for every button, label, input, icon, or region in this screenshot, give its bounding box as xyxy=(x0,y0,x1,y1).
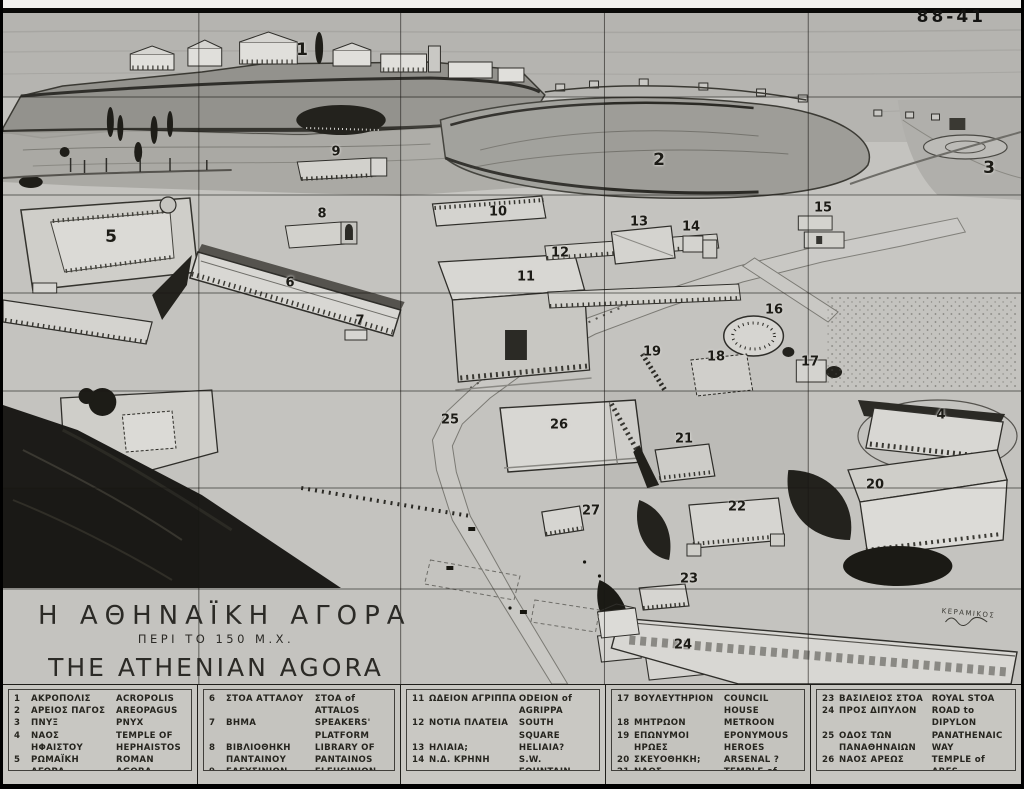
legend-entry-english: ROMAN AGORA xyxy=(116,754,187,771)
legend-entry-number: 21 xyxy=(617,766,632,771)
legend-tile-1: 1ΑΚΡΟΠΟΛΙΣACROPOLIS2ΑΡΕΙΟΣ ΠΑΓΟΣAREOPAGU… xyxy=(3,685,197,784)
legend-entry-greek: ΒΟΥΛΕΥΤΗΡΙΟΝ xyxy=(634,693,722,717)
legend-entry-greek: ΒΑΣΙΛΕΙΟΣ ΣΤΟΑ xyxy=(839,693,930,705)
legend-entry-9: 9ΕΛΕΥΣΙΝΙΟΝELEUSINION xyxy=(209,766,390,771)
legend-entry-greek: ΩΔΕΙΟΝ ΑΓΡΙΠΠΑ xyxy=(429,693,517,717)
legend-entry-5: 5ΡΩΜΑΪΚΗ ΑΓΟΡΑROMAN AGORA xyxy=(14,754,187,771)
legend-entry-greek: ΒΗΜΑ xyxy=(226,717,313,741)
legend-entry-english: HELIAIA? xyxy=(519,742,595,754)
legend: 1ΑΚΡΟΠΟΛΙΣACROPOLIS2ΑΡΕΙΟΣ ΠΑΓΟΣAREOPAGU… xyxy=(3,684,1021,784)
legend-entry-number: 2 xyxy=(14,705,29,717)
legend-entry-english: SPEAKERS' PLATFORM xyxy=(315,717,390,741)
legend-entry-number: 12 xyxy=(412,717,427,741)
legend-entry-greek: ΑΡΕΙΟΣ ΠΑΓΟΣ xyxy=(31,705,114,717)
legend-tile-4: 17ΒΟΥΛΕΥΤΗΡΙΟΝCOUNCIL HOUSE18ΜΗΤΡΩΟΝMETR… xyxy=(605,685,810,784)
legend-entry-english: AREOPAGUS xyxy=(116,705,187,717)
legend-entry-2: 2ΑΡΕΙΟΣ ΠΑΓΟΣAREOPAGUS xyxy=(14,705,187,717)
legend-entry-number: 6 xyxy=(209,693,224,717)
legend-entry-23: 23ΒΑΣΙΛΕΙΟΣ ΣΤΟΑROYAL STOA xyxy=(822,693,1011,705)
legend-entry-number: 5 xyxy=(14,754,29,771)
legend-entry-english: ELEUSINION xyxy=(315,766,390,771)
legend-entry-number: 24 xyxy=(822,705,837,729)
legend-entry-12: 12ΝΟΤΙΑ ΠΛΑΤΕΙΑSOUTH SQUARE xyxy=(412,717,595,741)
title-greek: Η ΑΘΗΝΑΪΚΗ ΑΓΟΡΑ xyxy=(38,601,394,631)
legend-entry-number: 19 xyxy=(617,730,632,754)
legend-entry-english: PNYX xyxy=(116,717,187,729)
legend-entry-english: TEMPLE of APOLLO xyxy=(724,766,800,771)
legend-entry-number: 3 xyxy=(14,717,29,729)
legend-entry-english: TEMPLE OF HEPHAISTOS xyxy=(116,730,187,754)
odeion-of-agrippa-sketch xyxy=(438,254,591,390)
legend-entry-greek: ΣΚΕΥΟΘΗΚΗ; xyxy=(634,754,722,766)
legend-tile-2: 6ΣΤΟΑ ΑΤΤΑΛΟΥΣΤΟΑ of ATTALOS7ΒΗΜΑSPEAKER… xyxy=(197,685,400,784)
legend-entry-greek: ΑΚΡΟΠΟΛΙΣ xyxy=(31,693,114,705)
legend-entry-greek: ΟΔΟΣ ΤΩΝ ΠΑΝΑΘΗΝΑΙΩΝ xyxy=(839,730,930,754)
legend-entry-13: 13ΗΛΙΑΙΑ;HELIAIA? xyxy=(412,742,595,754)
legend-entry-english: S.W. FOUNTAIN xyxy=(519,754,595,771)
title-block: Η ΑΘΗΝΑΪΚΗ ΑΓΟΡΑ ΠΕΡΙ ΤΟ 150 Μ.Χ. THE AT… xyxy=(38,601,394,697)
speckled-field xyxy=(826,296,1017,388)
legend-entry-26: 26ΝΑΟΣ ΑΡΕΩΣTEMPLE of ARES xyxy=(822,754,1011,771)
legend-entry-number: 1 xyxy=(14,693,29,705)
legend-tile-5: 23ΒΑΣΙΛΕΙΟΣ ΣΤΟΑROYAL STOA24ΠΡΟΣ ΔΙΠΥΛΟΝ… xyxy=(810,685,1021,784)
agora-map-sketch: ΚΕΡΑΜΙΚΟΣ xyxy=(3,0,1021,684)
legend-entry-greek: ΠΡΟΣ ΔΙΠΥΛΟΝ xyxy=(839,705,930,729)
legend-entry-english: TEMPLE of ARES xyxy=(932,754,1011,771)
photo-negative-number: 88-41 xyxy=(917,7,986,27)
legend-entry-greek: ΝΑΟΣ ΗΦΑΙΣΤΟΥ xyxy=(31,730,114,754)
legend-entry-number: 11 xyxy=(412,693,427,717)
legend-entry-number: 18 xyxy=(617,717,632,729)
legend-entry-number: 26 xyxy=(822,754,837,771)
legend-entry-greek: ΡΩΜΑΪΚΗ ΑΓΟΡΑ xyxy=(31,754,114,771)
legend-tile-3: 11ΩΔΕΙΟΝ ΑΓΡΙΠΠΑODEION of AGRIPPA12ΝΟΤΙΑ… xyxy=(400,685,605,784)
photo-frame: ΚΕΡΑΜΙΚΟΣ xyxy=(0,0,1024,789)
legend-entry-greek: ΝΑΟΣ ΑΠΟΛΛΩΝΟΣ xyxy=(634,766,722,771)
legend-entry-number: 20 xyxy=(617,754,632,766)
legend-entry-number: 7 xyxy=(209,717,224,741)
legend-entry-4: 4ΝΑΟΣ ΗΦΑΙΣΤΟΥTEMPLE OF HEPHAISTOS xyxy=(14,730,187,754)
legend-entry-english: METROON xyxy=(724,717,800,729)
legend-entry-17: 17ΒΟΥΛΕΥΤΗΡΙΟΝCOUNCIL HOUSE xyxy=(617,693,800,717)
legend-entry-english: EPONYMOUS HEROES xyxy=(724,730,800,754)
legend-entry-number: 13 xyxy=(412,742,427,754)
legend-entry-21: 21ΝΑΟΣ ΑΠΟΛΛΩΝΟΣTEMPLE of APOLLO xyxy=(617,766,800,771)
legend-entry-number: 8 xyxy=(209,742,224,766)
legend-entry-1: 1ΑΚΡΟΠΟΛΙΣACROPOLIS xyxy=(14,693,187,705)
legend-entry-greek: ΝΟΤΙΑ ΠΛΑΤΕΙΑ xyxy=(429,717,517,741)
legend-entry-english: ACROPOLIS xyxy=(116,693,187,705)
legend-entry-7: 7ΒΗΜΑSPEAKERS' PLATFORM xyxy=(209,717,390,741)
legend-entry-greek: ΣΤΟΑ ΑΤΤΑΛΟΥ xyxy=(226,693,313,717)
legend-entry-number: 23 xyxy=(822,693,837,705)
legend-entry-english: ROYAL STOA xyxy=(932,693,1011,705)
legend-entry-greek: ΕΠΩΝΥΜΟΙ ΗΡΩΕΣ xyxy=(634,730,722,754)
legend-entry-english: COUNCIL HOUSE xyxy=(724,693,800,717)
legend-entry-english: ODEION of AGRIPPA xyxy=(519,693,595,717)
legend-entry-11: 11ΩΔΕΙΟΝ ΑΓΡΙΠΠΑODEION of AGRIPPA xyxy=(412,693,595,717)
legend-entry-greek: ΝΑΟΣ ΑΡΕΩΣ xyxy=(839,754,930,771)
legend-entry-english: LIBRARY OF PANTAINOS xyxy=(315,742,390,766)
legend-entry-number: 25 xyxy=(822,730,837,754)
legend-entry-greek: ΠΝΥΞ xyxy=(31,717,114,729)
legend-entry-greek: ΗΛΙΑΙΑ; xyxy=(429,742,517,754)
legend-entry-english: ARSENAL ? xyxy=(724,754,800,766)
legend-entry-8: 8ΒΙΒΛΙΟΘΗΚΗ ΠΑΝΤΑΙΝΟΥLIBRARY OF PANTAINO… xyxy=(209,742,390,766)
legend-entry-greek: ΕΛΕΥΣΙΝΙΟΝ xyxy=(226,766,313,771)
legend-entry-greek: ΜΗΤΡΩΟΝ xyxy=(634,717,722,729)
legend-entry-25: 25ΟΔΟΣ ΤΩΝ ΠΑΝΑΘΗΝΑΙΩΝPANATHENAIC WAY xyxy=(822,730,1011,754)
legend-entry-24: 24ΠΡΟΣ ΔΙΠΥΛΟΝROAD to DIPYLON xyxy=(822,705,1011,729)
legend-entry-number: 4 xyxy=(14,730,29,754)
legend-entry-20: 20ΣΚΕΥΟΘΗΚΗ;ARSENAL ? xyxy=(617,754,800,766)
legend-entry-english: ROAD to DIPYLON xyxy=(932,705,1011,729)
legend-entry-19: 19ΕΠΩΝΥΜΟΙ ΗΡΩΕΣEPONYMOUS HEROES xyxy=(617,730,800,754)
legend-entry-greek: Ν.Δ. ΚΡΗΝΗ xyxy=(429,754,517,771)
title-english: THE ATHENIAN AGORA xyxy=(38,653,394,682)
title-greek-subtitle: ΠΕΡΙ ΤΟ 150 Μ.Χ. xyxy=(38,632,394,646)
legend-entry-number: 14 xyxy=(412,754,427,771)
legend-entry-18: 18ΜΗΤΡΩΟΝMETROON xyxy=(617,717,800,729)
legend-entry-english: PANATHENAIC WAY xyxy=(932,730,1011,754)
legend-entry-6: 6ΣΤΟΑ ΑΤΤΑΛΟΥΣΤΟΑ of ATTALOS xyxy=(209,693,390,717)
legend-entry-number: 9 xyxy=(209,766,224,771)
legend-entry-14: 14Ν.Δ. ΚΡΗΝΗS.W. FOUNTAIN xyxy=(412,754,595,771)
legend-entry-number: 17 xyxy=(617,693,632,717)
legend-entry-greek: ΒΙΒΛΙΟΘΗΚΗ ΠΑΝΤΑΙΝΟΥ xyxy=(226,742,313,766)
legend-entry-3: 3ΠΝΥΞPNYX xyxy=(14,717,187,729)
legend-entry-english: SOUTH SQUARE xyxy=(519,717,595,741)
legend-entry-english: ΣΤΟΑ of ATTALOS xyxy=(315,693,390,717)
